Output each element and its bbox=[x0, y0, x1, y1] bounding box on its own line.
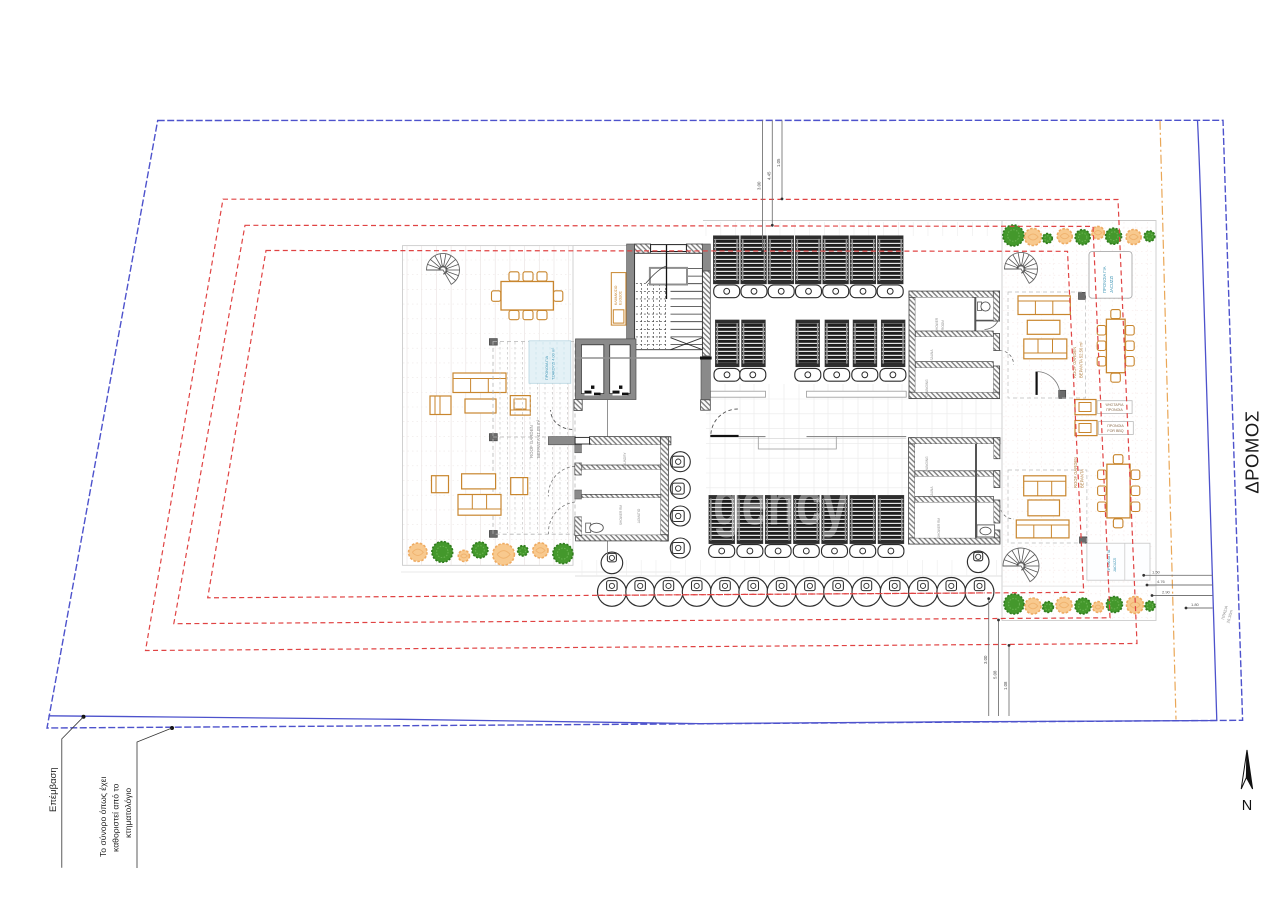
svg-text:JACUZZI: JACUZZI bbox=[1113, 558, 1117, 572]
svg-text:ROOF GARDEN: ROOF GARDEN bbox=[529, 425, 534, 458]
svg-text:N: N bbox=[1242, 798, 1252, 814]
svg-text:ΒΕΡΑΝΤΑ 52.56 m²: ΒΕΡΑΝΤΑ 52.56 m² bbox=[1079, 341, 1084, 378]
svg-text:Το σύνορο όπως έχει: Το σύνορο όπως έχει bbox=[98, 777, 108, 857]
svg-text:ΤΖΑΚΟΥΖΙ 4.00 m²: ΤΖΑΚΟΥΖΙ 4.00 m² bbox=[552, 347, 556, 380]
svg-text:ΚΛΙΜΑΚ/ΣΙΟ: ΚΛΙΜΑΚ/ΣΙΟ bbox=[614, 285, 618, 305]
svg-text:ΔΩΜΑΤΙΟ: ΔΩΜΑΤΙΟ bbox=[637, 508, 641, 523]
svg-text:SHOWER RM: SHOWER RM bbox=[619, 505, 623, 526]
svg-text:Επέμβαση: Επέμβαση bbox=[48, 767, 59, 812]
svg-text:ΔΡΟΜΟΣ: ΔΡΟΜΟΣ bbox=[1242, 410, 1263, 493]
svg-text:καθοριστεί από το: καθοριστεί από το bbox=[111, 783, 121, 852]
svg-text:JACUZZI: JACUZZI bbox=[1109, 276, 1114, 293]
svg-text:ΠΡΟΝΟΙΑ: ΠΡΟΝΟΙΑ bbox=[1107, 424, 1124, 428]
svg-text:ΒΕΡΑΝΤΑ: ΒΕΡΑΝΤΑ bbox=[1080, 469, 1085, 488]
svg-text:SHOWER RM: SHOWER RM bbox=[937, 518, 941, 539]
svg-text:1.80: 1.80 bbox=[1191, 602, 1200, 607]
svg-text:ROOM: ROOM bbox=[941, 320, 945, 330]
svg-text:SHOWER: SHOWER bbox=[935, 317, 939, 332]
svg-text:ΠΡΟΝΟΙΑ: ΠΡΟΝΟΙΑ bbox=[1106, 408, 1123, 412]
svg-text:SAUNA: SAUNA bbox=[930, 486, 934, 498]
svg-text:SAUNA: SAUNA bbox=[930, 349, 934, 361]
svg-text:4.45: 4.45 bbox=[767, 171, 772, 180]
svg-text:FOR BBQ: FOR BBQ bbox=[1107, 429, 1123, 433]
svg-text:ΨΗΣΤΑΡΙΑ: ΨΗΣΤΑΡΙΑ bbox=[1106, 403, 1125, 407]
svg-text:1.08: 1.08 bbox=[1003, 681, 1008, 690]
svg-text:ΕΞΟΔΟΣ: ΕΞΟΔΟΣ bbox=[619, 291, 623, 305]
svg-text:5.08: 5.08 bbox=[993, 670, 998, 679]
svg-text:3.00: 3.00 bbox=[983, 655, 988, 664]
svg-text:ΠΡΟΝΟΙΑ ΓΙΑ: ΠΡΟΝΟΙΑ ΓΙΑ bbox=[1102, 266, 1107, 293]
svg-text:CHANGING: CHANGING bbox=[925, 456, 929, 474]
svg-text:ΠΡΟΝΟΙΑ ΓΙΑ: ΠΡΟΝΟΙΑ ΓΙΑ bbox=[1107, 549, 1111, 572]
svg-text:1.05: 1.05 bbox=[776, 158, 781, 167]
svg-text:1.50: 1.50 bbox=[1152, 570, 1161, 575]
svg-text:κτηματολόγιο: κτηματολόγιο bbox=[123, 788, 133, 838]
svg-text:ΒΕΡΑΝΤΑ 41.08 m²: ΒΕΡΑΝΤΑ 41.08 m² bbox=[536, 419, 541, 458]
svg-text:3.00: 3.00 bbox=[757, 181, 762, 190]
svg-text:gency: gency bbox=[713, 470, 848, 539]
svg-text:ΠΡΟΝΟΙΑ ΓΙΑ: ΠΡΟΝΟΙΑ ΓΙΑ bbox=[545, 355, 549, 380]
svg-text:CHANGING: CHANGING bbox=[925, 379, 929, 397]
svg-text:4.76: 4.76 bbox=[1157, 579, 1166, 584]
svg-text:LAUNDRY: LAUNDRY bbox=[623, 452, 627, 468]
svg-text:2.90: 2.90 bbox=[1162, 590, 1171, 595]
